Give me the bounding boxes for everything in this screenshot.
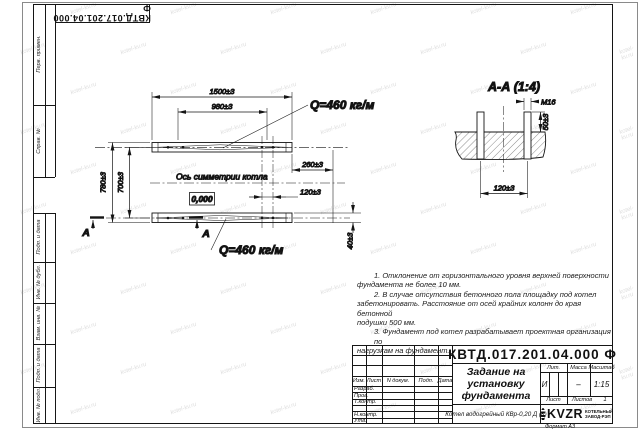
dim-thread xyxy=(516,98,539,110)
anchor-bolt-left xyxy=(477,112,484,159)
kvzr-logo-icon xyxy=(541,408,545,421)
title-line-1: Задание на xyxy=(467,366,526,378)
note-line: 3. Фундамент под котел разрабатывает про… xyxy=(357,327,615,346)
mass-value: – xyxy=(567,372,590,396)
drawing-sheet: { "sheet": { "format_note": "Формат А3",… xyxy=(0,0,644,430)
dim-outer-height xyxy=(108,143,150,223)
row-prov: Пров. xyxy=(352,393,382,399)
section-view-a-a: А-А (1:4) М16 50±3 120±3 xyxy=(455,80,556,198)
note-line: 1. Отклонение от горизонтального уровня … xyxy=(357,271,615,280)
scale-label: Масштаб xyxy=(590,363,613,372)
note-line: забетонировать. Расстояние от осей крайн… xyxy=(357,299,615,318)
row-tkontr: Т.контр. xyxy=(352,399,382,405)
section-letter-right: А xyxy=(201,228,210,240)
scale-value: 1:15 xyxy=(590,372,613,396)
dim-1500-text: 1500±3 xyxy=(210,87,236,96)
dim-120-plan-text: 120±3 xyxy=(300,188,322,197)
anchor-bolt-right xyxy=(524,112,531,159)
level-mark-text: 0,000 xyxy=(191,194,213,204)
company-cell: KVZR КОТЕЛЬНЫЙ ЗАВОД-РЭП xyxy=(541,404,613,424)
technical-notes: 1. Отклонение от горизонтального уровня … xyxy=(357,271,615,356)
note-line: фундамента не более 10 мм. xyxy=(357,280,615,289)
thread-label: М16 xyxy=(541,98,556,107)
note-line: 2. В случае отсутствия бетонного пола пл… xyxy=(357,290,615,299)
note-line: подушки 500 мм. xyxy=(357,318,615,327)
dim-700-text: 700±3 xyxy=(116,171,125,193)
lit-value: И xyxy=(540,372,549,396)
titleblock-product: Котел водогрейный КВр-0,20 Д (К) xyxy=(452,404,540,424)
dim-50-text: 50±3 xyxy=(541,113,550,130)
col-podp: Подп. xyxy=(414,376,438,386)
mass-label: Масса xyxy=(567,363,590,372)
sheets-value: 1 xyxy=(597,396,613,404)
plan-view: 1500±3 980±3 780±3 700±3 260±3 xyxy=(81,87,374,257)
title-line-3: фундамента xyxy=(462,390,531,402)
sheets-label: Листов xyxy=(567,396,597,404)
load-label-top: Q=460 кг/м xyxy=(310,98,375,112)
col-list: Лист xyxy=(366,376,382,386)
lit-label: Лит. xyxy=(540,363,567,372)
kvzr-logo-text: KVZR xyxy=(547,407,583,421)
title-line-2: установку xyxy=(467,378,524,390)
titleblock-doc-number: КВТД.017.201.04.000 Ф xyxy=(452,346,613,363)
col-izm: Изм. xyxy=(352,376,366,386)
titleblock-title: Задание на установку фундамента xyxy=(452,363,540,404)
concrete-block xyxy=(455,132,546,159)
col-data: Дата xyxy=(438,376,452,386)
symmetry-axis-label: Ось симметрии котла xyxy=(176,172,268,182)
section-letter-left: А xyxy=(81,227,90,239)
dim-980-text: 980±3 xyxy=(212,102,234,111)
load-label-bottom: Q=460 кг/м xyxy=(219,243,284,257)
row-nkontr: Н.контр. xyxy=(352,412,382,418)
col-docum: N докум. xyxy=(382,376,414,386)
section-title: А-А (1:4) xyxy=(487,80,540,94)
format-note: Формат А3 xyxy=(525,424,595,430)
dim-overall-width xyxy=(152,92,292,140)
dim-inner-height xyxy=(125,147,150,218)
dim-120-section-text: 120±3 xyxy=(494,184,516,193)
dim-beam-width xyxy=(294,202,361,233)
row-razrab: Разраб. xyxy=(352,386,382,392)
dim-260-text: 260±3 xyxy=(301,160,324,169)
dim-40-text: 40±3 xyxy=(346,232,355,249)
company-line-2: ЗАВОД-РЭП xyxy=(585,414,613,419)
dim-780-text: 780±3 xyxy=(99,171,108,193)
sheet-label: Лист xyxy=(540,396,567,404)
anchor-bolt-dots xyxy=(167,146,275,219)
dim-bolt-groups xyxy=(178,108,267,140)
row-utv: Утв. xyxy=(352,418,382,424)
